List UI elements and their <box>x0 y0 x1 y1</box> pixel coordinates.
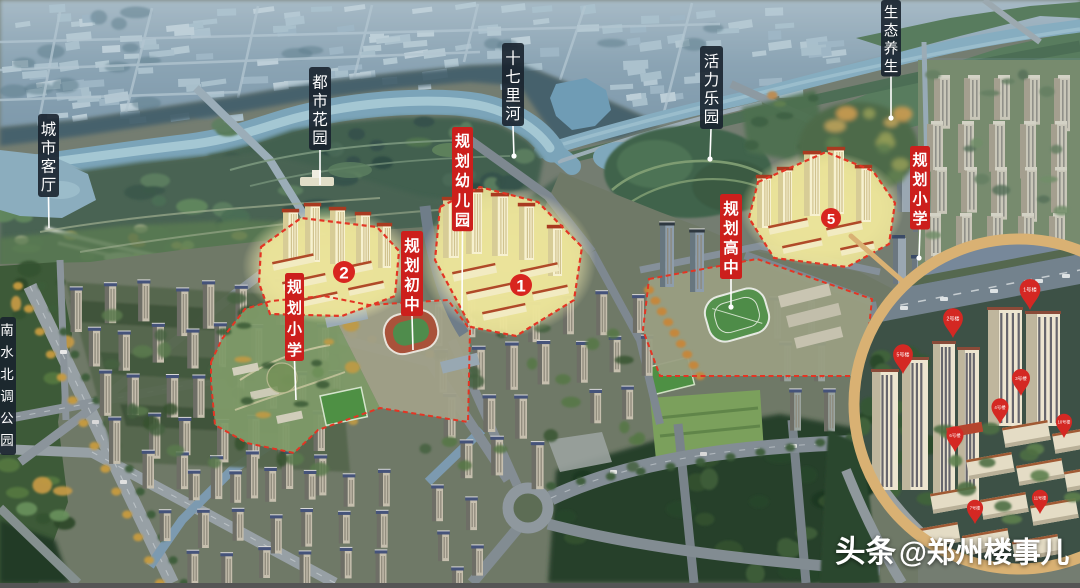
svg-text:规: 规 <box>912 152 927 169</box>
svg-text:生: 生 <box>884 5 899 22</box>
svg-text:儿: 儿 <box>454 192 470 209</box>
svg-text:十: 十 <box>505 50 521 68</box>
svg-text:花: 花 <box>312 111 328 129</box>
svg-text:园: 园 <box>312 130 328 147</box>
svg-text:头条: 头条 <box>835 535 896 569</box>
svg-text:划: 划 <box>287 299 302 317</box>
svg-text:活: 活 <box>704 53 720 71</box>
svg-text:调: 调 <box>0 389 14 404</box>
svg-text:幼: 幼 <box>455 172 470 190</box>
svg-text:养: 养 <box>884 41 899 58</box>
svg-text:学: 学 <box>912 210 927 228</box>
svg-text:学: 学 <box>287 341 302 359</box>
svg-text:3号楼: 3号楼 <box>1015 375 1027 382</box>
svg-text:规: 规 <box>723 200 739 218</box>
svg-text:中: 中 <box>723 258 739 277</box>
svg-text:小: 小 <box>912 191 927 208</box>
svg-text:@郑州楼事儿: @郑州楼事儿 <box>899 537 1069 569</box>
svg-text:园: 园 <box>455 212 470 229</box>
svg-text:河: 河 <box>505 105 521 123</box>
svg-text:七: 七 <box>505 68 521 86</box>
svg-text:划: 划 <box>912 171 927 189</box>
svg-text:北: 北 <box>0 367 14 382</box>
svg-text:6号楼: 6号楼 <box>949 432 961 439</box>
svg-text:城: 城 <box>41 121 57 139</box>
svg-text:公: 公 <box>0 411 14 426</box>
svg-text:规: 规 <box>455 133 470 150</box>
svg-text:南: 南 <box>0 323 14 338</box>
svg-text:1: 1 <box>516 277 525 296</box>
svg-text:水: 水 <box>0 345 14 360</box>
svg-text:中: 中 <box>404 295 420 314</box>
svg-text:市: 市 <box>41 139 57 157</box>
svg-text:划: 划 <box>404 256 420 275</box>
svg-text:初: 初 <box>404 275 420 294</box>
svg-text:2号楼: 2号楼 <box>947 315 960 322</box>
svg-text:里: 里 <box>505 87 521 105</box>
svg-text:4号楼: 4号楼 <box>994 404 1006 411</box>
svg-text:7号楼: 7号楼 <box>970 505 981 511</box>
svg-text:小: 小 <box>287 321 302 338</box>
svg-text:划: 划 <box>455 152 470 170</box>
svg-text:市: 市 <box>312 92 328 110</box>
svg-text:划: 划 <box>723 219 739 238</box>
svg-text:5: 5 <box>827 211 835 228</box>
svg-text:高: 高 <box>723 238 739 257</box>
svg-text:2: 2 <box>339 264 348 283</box>
svg-text:客: 客 <box>41 158 57 176</box>
svg-text:1号楼: 1号楼 <box>1023 286 1037 294</box>
svg-text:都: 都 <box>312 74 328 92</box>
svg-text:10号楼: 10号楼 <box>1058 419 1071 425</box>
svg-text:规: 规 <box>404 237 420 255</box>
svg-text:力: 力 <box>704 71 720 89</box>
svg-text:11号楼: 11号楼 <box>1034 495 1047 501</box>
svg-text:5号楼: 5号楼 <box>897 351 910 358</box>
svg-text:态: 态 <box>884 23 899 40</box>
svg-text:园: 园 <box>0 433 14 448</box>
svg-text:园: 园 <box>704 109 720 126</box>
svg-text:厅: 厅 <box>41 177 57 194</box>
svg-text:规: 规 <box>287 279 302 296</box>
svg-text:乐: 乐 <box>704 90 720 108</box>
svg-text:生: 生 <box>884 59 899 76</box>
